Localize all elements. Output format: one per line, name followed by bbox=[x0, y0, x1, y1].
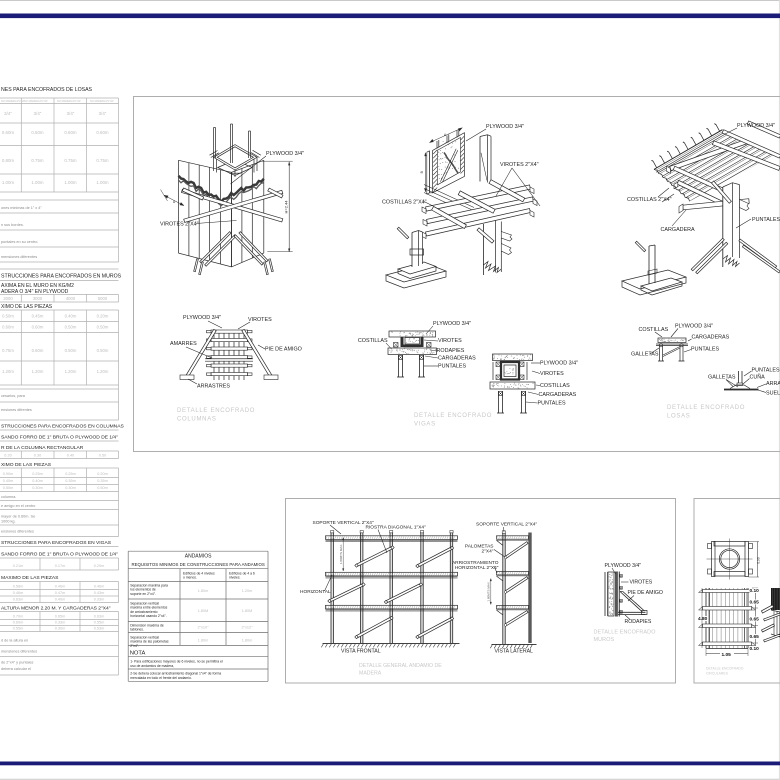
svg-text:columna.: columna. bbox=[1, 495, 16, 499]
svg-text:0.40m: 0.40m bbox=[3, 479, 14, 483]
svg-text:CARGADERAS: CARGADERAS bbox=[438, 356, 476, 362]
svg-text:0.90m: 0.90m bbox=[3, 472, 14, 476]
svg-text:0.50m: 0.50m bbox=[31, 130, 44, 135]
svg-text:d de la altura en: d de la altura en bbox=[1, 639, 28, 643]
svg-text:0.90: 0.90 bbox=[757, 557, 761, 563]
svg-text:0.75m: 0.75m bbox=[64, 158, 77, 163]
svg-text:1.80M: 1.80M bbox=[198, 609, 209, 613]
svg-text:1.20m: 1.20m bbox=[32, 369, 44, 374]
svg-text:0.50m: 0.50m bbox=[97, 348, 109, 353]
svg-text:PIE DE AMIGO: PIE DE AMIGO bbox=[265, 347, 302, 353]
svg-text:PUNTALES: PUNTALES bbox=[752, 368, 780, 374]
svg-text:1.00m: 1.00m bbox=[64, 180, 77, 185]
svg-text:VISTA LATERAL: VISTA LATERAL bbox=[495, 649, 534, 655]
svg-text:RODAPIES: RODAPIES bbox=[437, 348, 465, 354]
svg-text:0.80m: 0.80m bbox=[2, 158, 15, 163]
svg-text:COSTILLAS: COSTILLAS bbox=[540, 383, 570, 389]
svg-text:0.70m: 0.70m bbox=[13, 615, 24, 619]
svg-text:SANDO FORRO DE 1" BRUTA O PLYW: SANDO FORRO DE 1" BRUTA O PLYWOOD DE 1/4… bbox=[1, 552, 118, 558]
svg-text:ANDAMIOS: ANDAMIOS bbox=[185, 554, 212, 560]
svg-text:DETALLE ENCOFRADO: DETALLE ENCOFRADO bbox=[594, 630, 656, 636]
svg-text:COSTILLAS: COSTILLAS bbox=[358, 338, 388, 344]
svg-text:5000: 5000 bbox=[98, 296, 108, 301]
svg-text:0.65: 0.65 bbox=[750, 617, 760, 623]
svg-text:1.20m: 1.20m bbox=[242, 589, 253, 593]
svg-text:PIE DE AMIGO: PIE DE AMIGO bbox=[628, 590, 663, 596]
svg-text:PUNTALES: PUNTALES bbox=[538, 401, 566, 407]
svg-text:0.60m: 0.60m bbox=[64, 130, 77, 135]
svg-text:0.10: 0.10 bbox=[750, 588, 760, 594]
svg-text:DETALLE ENCOFRADO: DETALLE ENCOFRADO bbox=[706, 667, 744, 671]
svg-text:0.50m: 0.50m bbox=[97, 325, 109, 330]
svg-text:0.47m: 0.47m bbox=[55, 591, 66, 595]
svg-text:0.45m: 0.45m bbox=[32, 314, 44, 319]
svg-text:PUNTALES: PUNTALES bbox=[438, 364, 466, 370]
svg-text:0.75m: 0.75m bbox=[31, 158, 44, 163]
svg-text:n sus bordes.: n sus bordes. bbox=[1, 223, 24, 227]
svg-text:MADERA: MADERA bbox=[359, 671, 382, 677]
svg-text:mensiones diferentes: mensiones diferentes bbox=[1, 255, 37, 259]
svg-text:DETALLE ENCOFRADO: DETALLE ENCOFRADO bbox=[414, 413, 492, 419]
svg-text:3/4": 3/4" bbox=[34, 111, 42, 116]
svg-text:4.80: 4.80 bbox=[698, 616, 708, 622]
svg-text:LOSAS: LOSAS bbox=[667, 414, 691, 420]
svg-text:2000: 2000 bbox=[3, 296, 13, 301]
svg-text:1.00m: 1.00m bbox=[2, 180, 15, 185]
svg-text:3/4": 3/4" bbox=[4, 111, 12, 116]
svg-text:1.80M: 1.80M bbox=[242, 609, 253, 613]
svg-text:PLYWOOD 3/4": PLYWOOD 3/4" bbox=[266, 151, 304, 157]
svg-text:NO MADERA PLYW: NO MADERA PLYW bbox=[24, 99, 48, 103]
svg-text:VIROTES: VIROTES bbox=[540, 371, 564, 377]
svg-text:PUNTALES: PUNTALES bbox=[691, 347, 719, 353]
svg-text:o menos.: o menos. bbox=[183, 576, 197, 580]
svg-text:0.60m: 0.60m bbox=[13, 621, 24, 625]
svg-text:0.58m: 0.58m bbox=[13, 585, 24, 589]
svg-text:0.40m: 0.40m bbox=[32, 479, 43, 483]
svg-text:DETALLE GENERAL ANDAMIO DE: DETALLE GENERAL ANDAMIO DE bbox=[359, 663, 442, 669]
svg-text:0.20m: 0.20m bbox=[94, 564, 105, 568]
svg-text:0.50: 0.50 bbox=[99, 454, 106, 458]
svg-text:CARGADERA: CARGADERA bbox=[661, 227, 696, 233]
svg-text:H=2.44: H=2.44 bbox=[283, 200, 288, 214]
svg-text:0.33m: 0.33m bbox=[55, 621, 66, 625]
svg-text:1.05: 1.05 bbox=[722, 652, 732, 658]
svg-text:1.80MTS MAX.: 1.80MTS MAX. bbox=[339, 544, 343, 565]
svg-text:0.63m: 0.63m bbox=[13, 598, 24, 602]
svg-text:soporte en 2"x4".: soporte en 2"x4". bbox=[130, 592, 156, 596]
svg-text:STRUCCIONES PARA ENCOFRADOS EN: STRUCCIONES PARA ENCOFRADOS EN VIGAS bbox=[1, 540, 112, 546]
svg-text:SOPORTE VERTICAL 2"X4": SOPORTE VERTICAL 2"X4" bbox=[476, 522, 537, 528]
svg-text:HORIZONTAL: HORIZONTAL bbox=[300, 589, 331, 595]
svg-text:0.60m: 0.60m bbox=[2, 130, 15, 135]
svg-text:STRUCCIONES PARA ENCOFRADOS EN: STRUCCIONES PARA ENCOFRADOS EN MUROS bbox=[1, 274, 122, 280]
svg-text:PLYWOOD 3/4": PLYWOOD 3/4" bbox=[486, 124, 524, 130]
svg-text:ALTURA MENOR 2.20 M. Y CARGADE: ALTURA MENOR 2.20 M. Y CARGADERAS 2"X4" bbox=[1, 606, 111, 612]
svg-text:2-Se debera colocar arriostram: 2-Se debera colocar arriostramiento diag… bbox=[130, 672, 221, 676]
svg-text:0.20m: 0.20m bbox=[97, 472, 108, 476]
svg-text:de 2"x4" y puntales: de 2"x4" y puntales bbox=[1, 661, 34, 665]
svg-text:VISTA FRONTAL: VISTA FRONTAL bbox=[341, 649, 381, 655]
svg-text:0.46m: 0.46m bbox=[55, 585, 66, 589]
svg-text:3000: 3000 bbox=[33, 296, 43, 301]
svg-text:VIROTES 2"X4": VIROTES 2"X4" bbox=[500, 162, 539, 168]
svg-text:DETALLE ENCOFRADO: DETALLE ENCOFRADO bbox=[177, 408, 255, 414]
svg-text:0.40m: 0.40m bbox=[65, 314, 77, 319]
svg-text:0.60m: 0.60m bbox=[32, 325, 44, 330]
svg-text:1.80m: 1.80m bbox=[198, 639, 209, 643]
svg-text:RODAPIES: RODAPIES bbox=[625, 619, 652, 625]
svg-text:0.43m: 0.43m bbox=[94, 591, 105, 595]
svg-text:VIROTES: VIROTES bbox=[630, 580, 653, 586]
svg-text:0.55m: 0.55m bbox=[94, 621, 105, 625]
svg-text:0.10: 0.10 bbox=[750, 646, 760, 652]
svg-text:0.50m: 0.50m bbox=[97, 486, 108, 490]
svg-text:0.25m: 0.25m bbox=[65, 472, 76, 476]
svg-text:REQUISITOS MINIMOS DE CONSTRUC: REQUISITOS MINIMOS DE CONSTRUCCIONES PAR… bbox=[131, 562, 264, 567]
svg-text:0.50m: 0.50m bbox=[65, 325, 77, 330]
svg-text:0.60m: 0.60m bbox=[32, 348, 44, 353]
svg-text:XIMO DE LAS PIEZAS: XIMO DE LAS PIEZAS bbox=[1, 462, 52, 468]
svg-text:PLYWOOD 3/4": PLYWOOD 3/4" bbox=[675, 324, 713, 330]
svg-text:HORIZONTAL 2"X4": HORIZONTAL 2"X4" bbox=[455, 565, 499, 571]
svg-text:tablones.: tablones. bbox=[130, 628, 144, 632]
svg-text:NES PARA ENCOFRADOS DE LOSAS: NES PARA ENCOFRADOS DE LOSAS bbox=[1, 87, 93, 93]
svg-text:AMARRES: AMARRES bbox=[170, 341, 197, 347]
svg-text:puntales en su centro.: puntales en su centro. bbox=[1, 240, 38, 244]
svg-text:ARRASTRES: ARRASTRES bbox=[197, 384, 230, 390]
svg-text:NO MADERA PLYW: NO MADERA PLYW bbox=[1, 99, 25, 103]
svg-text:1- Para edificaciones mayores: 1- Para edificaciones mayores de 6 nivel… bbox=[130, 660, 223, 664]
svg-text:0.60m: 0.60m bbox=[2, 325, 14, 330]
svg-text:NO MADERA PLYW: NO MADERA PLYW bbox=[57, 99, 81, 103]
svg-text:PLYWOOD 3/4": PLYWOOD 3/4" bbox=[605, 563, 642, 569]
svg-text:1.00m: 1.00m bbox=[96, 180, 109, 185]
svg-text:4000: 4000 bbox=[66, 296, 76, 301]
svg-text:0.65m: 0.65m bbox=[55, 615, 66, 619]
svg-text:NOTA: NOTA bbox=[130, 651, 146, 657]
svg-text:MUROS: MUROS bbox=[594, 637, 615, 643]
svg-text:CARGADERAS: CARGADERAS bbox=[692, 335, 730, 341]
svg-text:MAXIMO DE LAS PIEZAS: MAXIMO DE LAS PIEZAS bbox=[1, 575, 59, 581]
svg-text:0.30: 0.30 bbox=[34, 454, 41, 458]
svg-text:mercalada en todo el frente de: mercalada en todo el frente del andamio. bbox=[130, 676, 192, 680]
svg-text:1.80MTS MAX.: 1.80MTS MAX. bbox=[487, 581, 491, 602]
svg-text:debera calcular el: debera calcular el bbox=[1, 667, 31, 671]
svg-text:1.80m: 1.80m bbox=[198, 589, 209, 593]
svg-text:uso de andamios de madera,: uso de andamios de madera, bbox=[130, 664, 174, 668]
svg-text:niveles.: niveles. bbox=[229, 576, 241, 580]
svg-text:COLUMNAS: COLUMNAS bbox=[177, 417, 217, 423]
svg-text:1000 kg.: 1000 kg. bbox=[1, 520, 16, 524]
svg-text:PUNTALES: PUNTALES bbox=[752, 217, 780, 223]
svg-text:mayor de 0.60m. Se: mayor de 0.60m. Se bbox=[1, 515, 35, 519]
svg-text:mensiones diferentes: mensiones diferentes bbox=[1, 650, 37, 654]
svg-text:B: B bbox=[420, 171, 424, 173]
svg-text:STRUCCIONES PARA ENCOFRADOS EN: STRUCCIONES PARA ENCOFRADOS EN COLUMNAS bbox=[1, 424, 124, 430]
svg-text:VIGAS: VIGAS bbox=[414, 422, 436, 428]
svg-text:NO MADERA PLYW: NO MADERA PLYW bbox=[90, 99, 114, 103]
svg-text:2"x12": 2"x12" bbox=[242, 626, 254, 630]
svg-text:0.40m: 0.40m bbox=[55, 598, 66, 602]
svg-text:0.50m: 0.50m bbox=[2, 314, 14, 319]
svg-text:0.65: 0.65 bbox=[750, 634, 760, 640]
svg-text:0.30m: 0.30m bbox=[32, 486, 43, 490]
svg-text:0.50m: 0.50m bbox=[3, 486, 14, 490]
svg-text:XIMO DE LAS PIEZAS: XIMO DE LAS PIEZAS bbox=[1, 304, 53, 310]
svg-text:0.46m: 0.46m bbox=[94, 585, 105, 589]
svg-text:2"x10": 2"x10" bbox=[198, 626, 210, 630]
svg-text:ensiones diferentes: ensiones diferentes bbox=[1, 530, 34, 534]
svg-text:0.25m: 0.25m bbox=[32, 472, 43, 476]
svg-text:1.20m: 1.20m bbox=[2, 369, 14, 374]
svg-text:0.46m: 0.46m bbox=[13, 591, 24, 595]
svg-text:0.53m: 0.53m bbox=[94, 627, 105, 631]
svg-text:horizontal usando 2"x4".: horizontal usando 2"x4". bbox=[130, 614, 167, 618]
svg-text:0.60m: 0.60m bbox=[96, 130, 109, 135]
svg-text:1.00m: 1.00m bbox=[31, 180, 44, 185]
svg-text:0.65: 0.65 bbox=[750, 600, 760, 606]
svg-text:ARRAS: ARRAS bbox=[766, 381, 780, 387]
svg-text:COSTILLAS: COSTILLAS bbox=[639, 327, 669, 333]
svg-text:0.35m: 0.35m bbox=[65, 479, 76, 483]
svg-text:ensiones difrentes: ensiones difrentes bbox=[1, 408, 32, 412]
svg-text:PLYWOOD 3/4": PLYWOOD 3/4" bbox=[183, 315, 221, 321]
svg-text:2"x4".: 2"x4". bbox=[130, 644, 139, 648]
svg-text:VIROTES: VIROTES bbox=[438, 338, 462, 344]
svg-text:0.33m: 0.33m bbox=[94, 598, 105, 602]
svg-text:VIROTES: VIROTES bbox=[248, 317, 272, 323]
svg-text:3/4": 3/4" bbox=[99, 111, 107, 116]
svg-text:2"X4": 2"X4" bbox=[482, 549, 494, 555]
svg-text:0.50m: 0.50m bbox=[65, 348, 77, 353]
svg-text:0.63m: 0.63m bbox=[94, 615, 105, 619]
svg-text:ADERA O 3/4" EN PLYWOOD: ADERA O 3/4" EN PLYWOOD bbox=[1, 289, 69, 295]
svg-text:VIROTES 2"X4": VIROTES 2"X4" bbox=[160, 222, 199, 228]
svg-text:0.20: 0.20 bbox=[4, 454, 11, 458]
svg-text:0.55m: 0.55m bbox=[13, 627, 24, 631]
svg-text:PLYWOOD 3/4": PLYWOOD 3/4" bbox=[737, 123, 775, 129]
svg-text:PLYWOOD 3/4": PLYWOOD 3/4" bbox=[433, 321, 471, 327]
svg-text:0.75m: 0.75m bbox=[96, 158, 109, 163]
svg-text:0.40: 0.40 bbox=[67, 454, 74, 458]
svg-text:0.17m: 0.17m bbox=[55, 564, 66, 568]
svg-text:COSTILLAS 2"X4": COSTILLAS 2"X4" bbox=[382, 200, 427, 206]
svg-text:1.20m: 1.20m bbox=[97, 369, 109, 374]
svg-text:SANDO FORRO DE 1" BRUTA O PLYW: SANDO FORRO DE 1" BRUTA O PLYWOOD DE 1/4… bbox=[1, 435, 118, 441]
svg-text:cesarios, para: cesarios, para bbox=[1, 394, 26, 398]
svg-text:0.21m: 0.21m bbox=[13, 564, 24, 568]
svg-text:GALLETAS: GALLETAS bbox=[631, 352, 659, 358]
svg-text:CIRCULARES: CIRCULARES bbox=[706, 672, 729, 676]
svg-text:PLYWOOD 3/4": PLYWOOD 3/4" bbox=[540, 361, 578, 367]
svg-text:1.20m: 1.20m bbox=[65, 369, 77, 374]
svg-text:3/4": 3/4" bbox=[67, 111, 75, 116]
svg-text:GALLETAS: GALLETAS bbox=[708, 375, 736, 381]
svg-text:0.30m: 0.30m bbox=[65, 486, 76, 490]
svg-text:CARGADERAS: CARGADERAS bbox=[539, 392, 577, 398]
svg-text:1.80m: 1.80m bbox=[242, 639, 253, 643]
svg-text:CUÑA: CUÑA bbox=[750, 374, 766, 381]
svg-text:DETALLE ENCOFRADO: DETALLE ENCOFRADO bbox=[667, 405, 745, 411]
svg-text:0.20m: 0.20m bbox=[97, 314, 109, 319]
svg-text:SUELO: SUELO bbox=[766, 391, 780, 397]
svg-text:0.35m: 0.35m bbox=[97, 479, 108, 483]
svg-text:0.30m: 0.30m bbox=[55, 627, 66, 631]
svg-text:ones minimas de 1" x 4": ones minimas de 1" x 4" bbox=[1, 206, 42, 210]
svg-text:e amigo en el centro: e amigo en el centro bbox=[1, 504, 35, 508]
svg-text:RIOSTRA DIAGONAL 1"X4": RIOSTRA DIAGONAL 1"X4" bbox=[366, 525, 427, 531]
svg-text:0.75m: 0.75m bbox=[2, 348, 14, 353]
svg-text:R DE LA COLUMNA RECTANGULAR: R DE LA COLUMNA RECTANGULAR bbox=[1, 445, 84, 451]
